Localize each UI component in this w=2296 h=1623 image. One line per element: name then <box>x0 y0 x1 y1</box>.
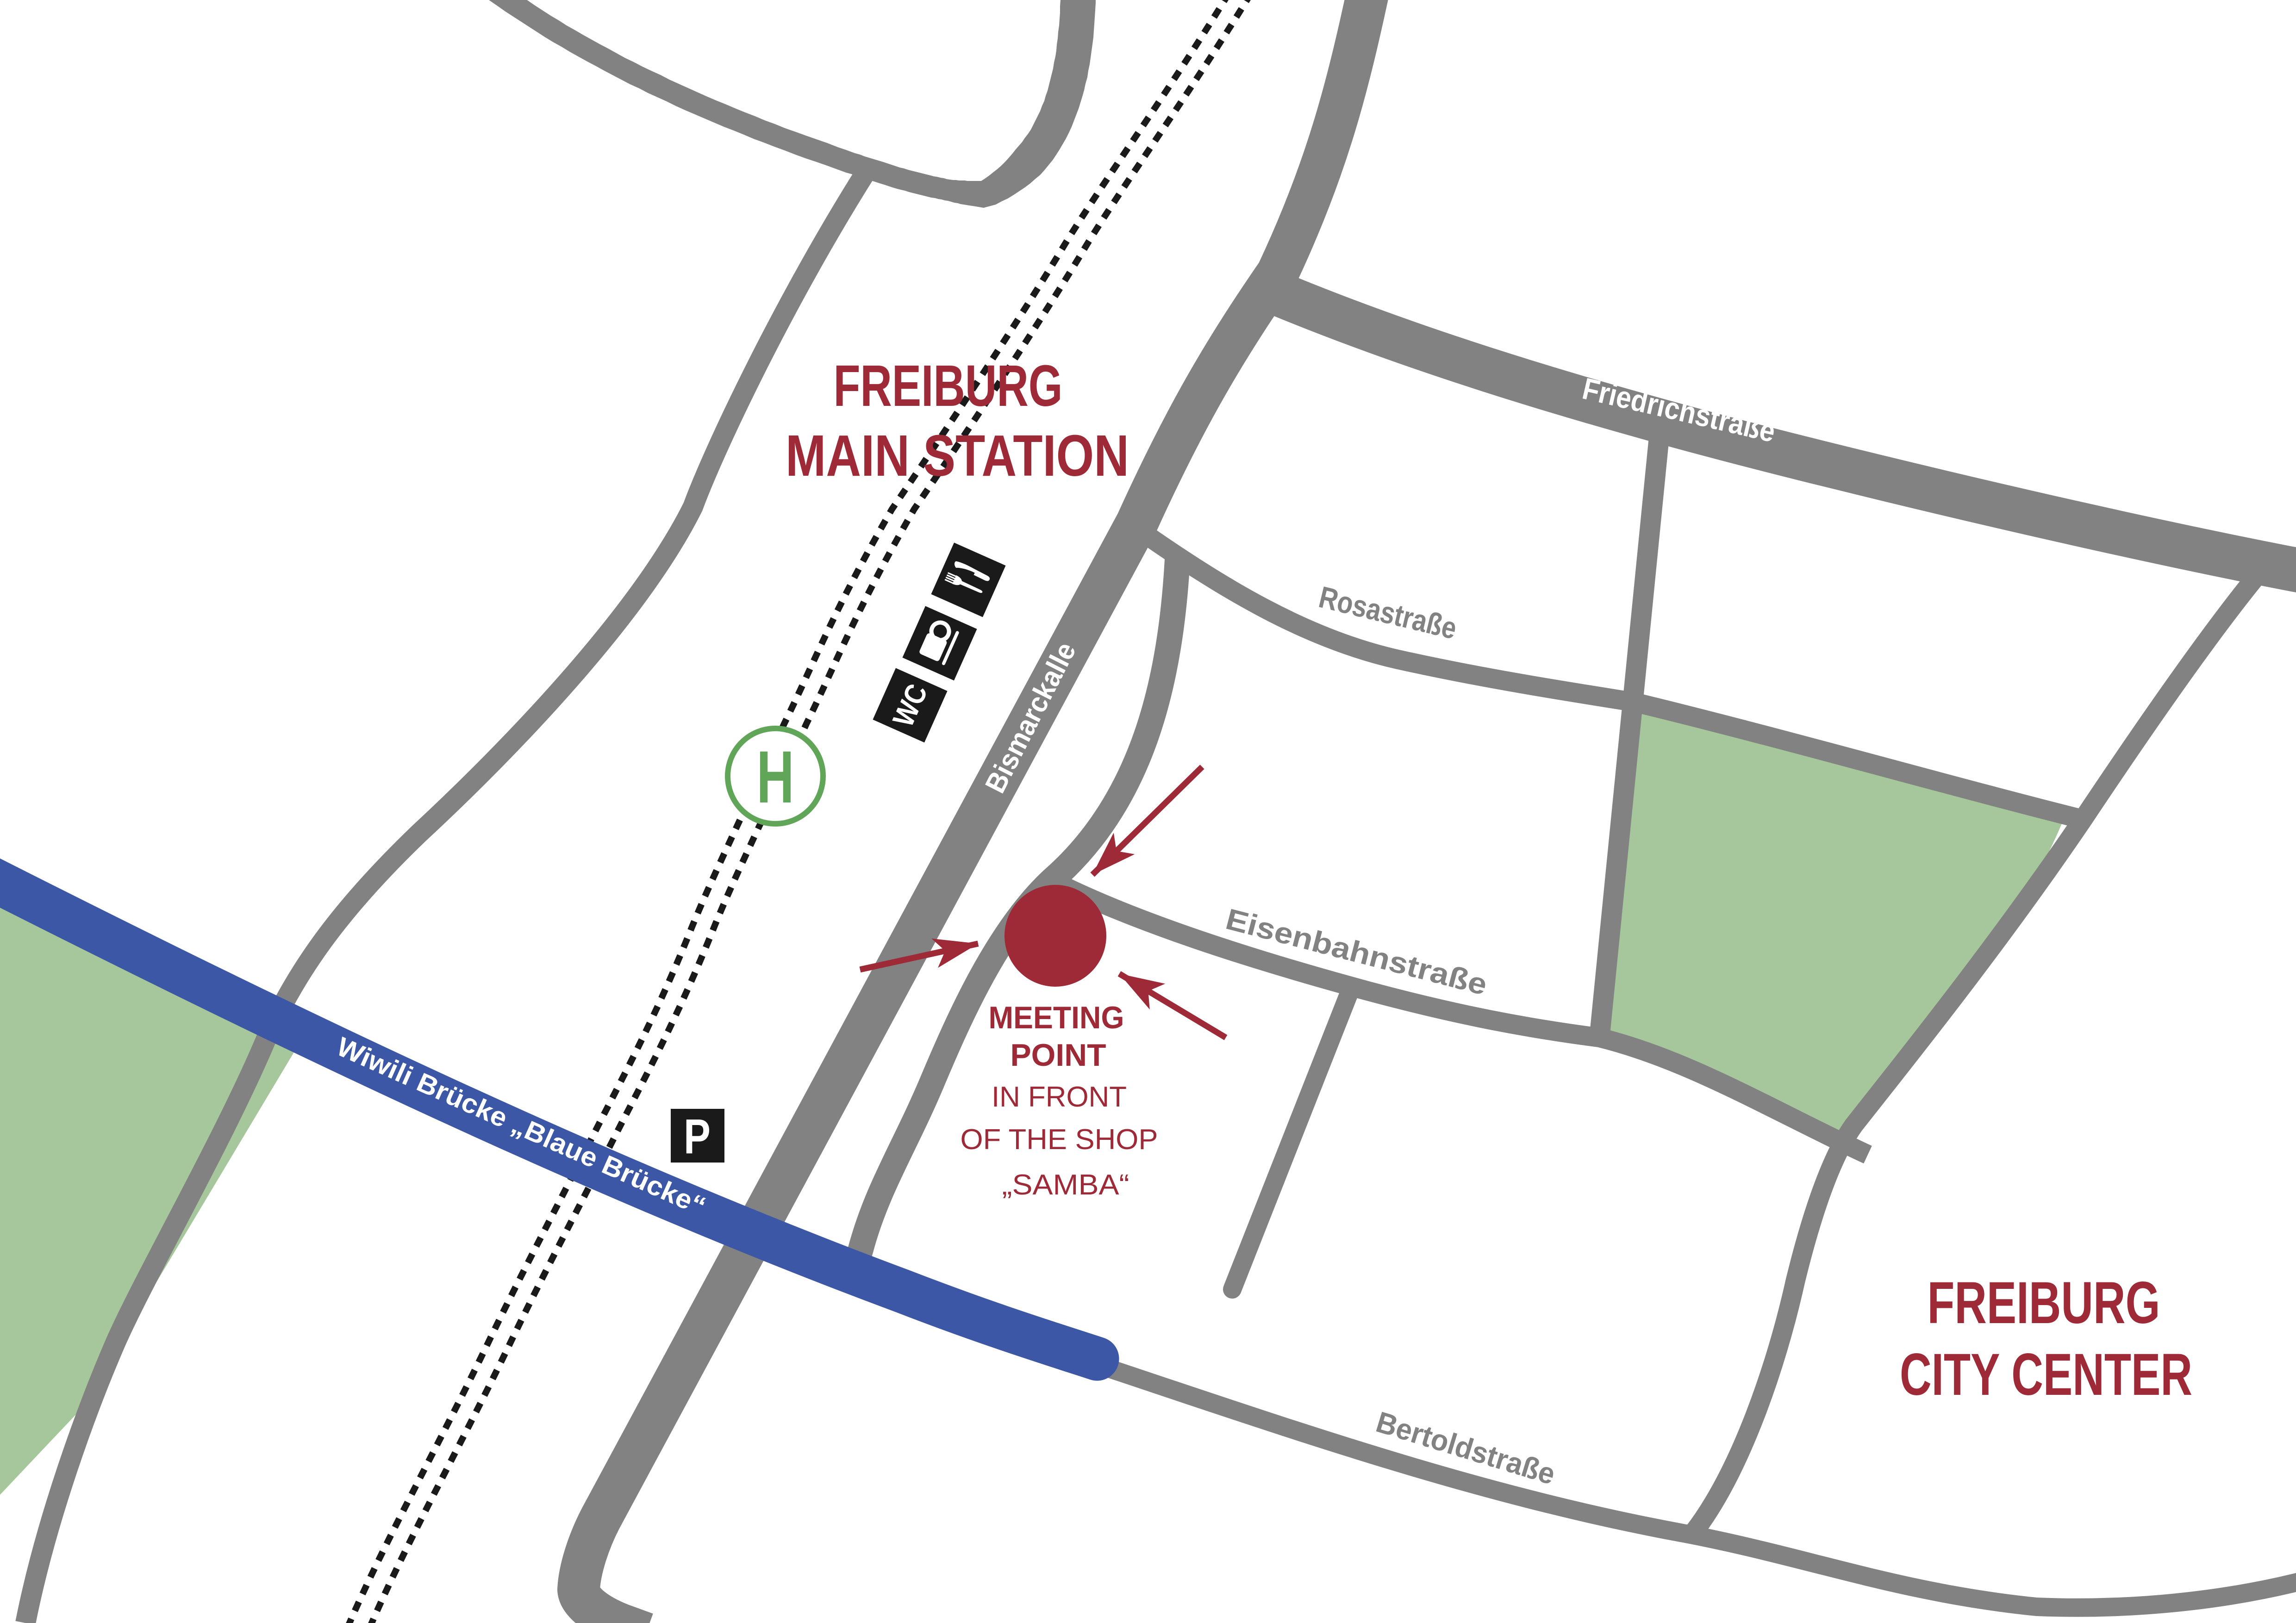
svg-text:P: P <box>684 1109 711 1164</box>
svg-text:H: H <box>757 736 794 818</box>
svg-text:MAIN STATION: MAIN STATION <box>786 423 1129 488</box>
svg-text:FREIBURG: FREIBURG <box>1928 1270 2160 1336</box>
svg-text:MEETING: MEETING <box>989 1000 1124 1035</box>
svg-text:„SAMBA“: „SAMBA“ <box>1002 1169 1129 1201</box>
svg-text:OF THE SHOP: OF THE SHOP <box>961 1124 1158 1156</box>
svg-text:FREIBURG: FREIBURG <box>834 353 1063 418</box>
svg-text:IN FRONT: IN FRONT <box>992 1081 1127 1113</box>
svg-text:POINT: POINT <box>1011 1038 1106 1073</box>
svg-text:CITY CENTER: CITY CENTER <box>1900 1342 2192 1408</box>
